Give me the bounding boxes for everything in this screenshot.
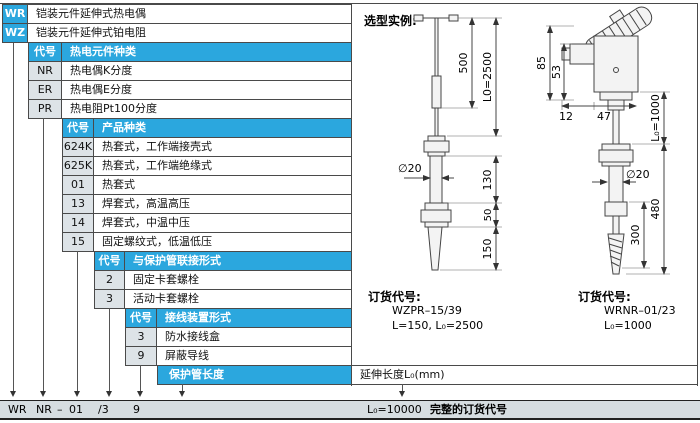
table-row: 3 活动卡套螺栓 bbox=[94, 289, 352, 309]
table-row: WZ 铠装元件延伸式铂电阻 bbox=[2, 23, 352, 43]
dim-label-50: 50 bbox=[483, 209, 494, 222]
arrow-down-icon bbox=[399, 391, 405, 397]
code-header-cell: 代号 bbox=[62, 118, 94, 138]
desc-cell: 热电偶E分度 bbox=[61, 80, 352, 100]
desc-cell: 铠装元件延伸式热电偶 bbox=[27, 4, 352, 24]
dim-label-500: 500 bbox=[457, 53, 470, 74]
table-row: 3 防水接线盒 bbox=[125, 327, 352, 347]
desc-cell: 活动卡套螺栓 bbox=[124, 289, 352, 309]
desc-cell: 固定螺纹式，低温低压 bbox=[93, 232, 352, 252]
arrow-down-icon bbox=[74, 391, 80, 397]
code-header-cell: 代号 bbox=[28, 42, 62, 62]
table-row: ER 热电偶E分度 bbox=[28, 80, 352, 100]
desc-cell: 热电阻Pt100分度 bbox=[61, 99, 352, 119]
arrow-down-icon bbox=[179, 391, 185, 397]
bar-code: NR bbox=[36, 402, 52, 417]
desc-cell: 热电偶K分度 bbox=[61, 61, 352, 81]
table-row: 13 焊套式，高温高压 bbox=[62, 194, 352, 214]
order-params-right: L₀=1000 bbox=[604, 319, 652, 332]
code-cell: 13 bbox=[62, 194, 94, 214]
order-code-left: WZPR–15/39 bbox=[392, 304, 462, 317]
table-header-row: 代号 产品种类 bbox=[62, 118, 352, 138]
code-cell: 01 bbox=[62, 175, 94, 195]
code-cell: PR bbox=[28, 99, 62, 119]
catalog-page: WR 铠装元件延伸式热电偶 WZ 铠装元件延伸式铂电阻 代号 热电元件种类 NR… bbox=[0, 0, 700, 423]
probe-body bbox=[599, 110, 633, 274]
table-row: 2 固定卡套螺栓 bbox=[94, 270, 352, 290]
length-value-cell: 延伸长度L₀(mm) bbox=[351, 365, 698, 385]
table-connection-type: 代号 与保护管联接形式 2 固定卡套螺栓 3 活动卡套螺栓 bbox=[94, 251, 352, 309]
bar-code: /3 bbox=[98, 402, 109, 417]
code-cell: 625K bbox=[62, 156, 94, 176]
order-label-right: 订货代号: bbox=[578, 288, 631, 305]
thermocouple-drawing-left: 500 L0=2500 ∅20 130 50 150 bbox=[392, 6, 522, 288]
table-row: 01 热套式 bbox=[62, 175, 352, 195]
dim-label-l0-1000: L₀=1000 bbox=[649, 94, 662, 142]
table-tube-length: 保护管长度 延伸长度L₀(mm) bbox=[157, 365, 698, 385]
thermocouple-drawing-right: 85 53 12 47 L₀=1000 ∅20 480 300 bbox=[534, 6, 698, 288]
connector-line bbox=[140, 365, 141, 392]
desc-cell: 热套式 bbox=[93, 175, 352, 195]
table-header-row: 代号 接线装置形式 bbox=[125, 308, 352, 328]
table-product-family: WR 铠装元件延伸式热电偶 WZ 铠装元件延伸式铂电阻 bbox=[2, 4, 352, 43]
code-cell: 14 bbox=[62, 213, 94, 233]
arrow-down-icon bbox=[10, 391, 16, 397]
bar-code: WR bbox=[8, 402, 27, 417]
desc-cell: 热套式，工作端接壳式 bbox=[93, 137, 352, 157]
desc-cell: 焊套式，中温中压 bbox=[93, 213, 352, 233]
table-row: 14 焊套式，中温中压 bbox=[62, 213, 352, 233]
table-terminal-type: 代号 接线装置形式 3 防水接线盒 9 屏蔽导线 bbox=[125, 308, 352, 366]
dim-label-total-length: L0=2500 bbox=[481, 52, 494, 102]
junction-head bbox=[562, 0, 655, 110]
bar-code: 9 bbox=[133, 402, 140, 417]
table-header-row: 代号 与保护管联接形式 bbox=[94, 251, 352, 271]
desc-cell: 屏蔽导线 bbox=[156, 346, 352, 366]
table-element-type: 代号 热电元件种类 NR 热电偶K分度 ER 热电偶E分度 PR 热电阻Pt10… bbox=[28, 42, 352, 119]
dim-label-12: 12 bbox=[559, 110, 573, 123]
connector-line bbox=[43, 118, 44, 392]
bar-code: 01 bbox=[69, 402, 83, 417]
desc-cell: 铠装元件延伸式铂电阻 bbox=[27, 23, 352, 43]
table-row: NR 热电偶K分度 bbox=[28, 61, 352, 81]
table-header-row: 代号 热电元件种类 bbox=[28, 42, 352, 62]
code-header-cell: 代号 bbox=[94, 251, 125, 271]
code-cell: 15 bbox=[62, 232, 94, 252]
order-code-bar: WR NR – 01 /3 9 L₀=10000 完整的订货代号 bbox=[0, 400, 700, 420]
code-cell: 9 bbox=[125, 346, 157, 366]
code-cell: 3 bbox=[125, 327, 157, 347]
bar-length-code: L₀=10000 bbox=[367, 402, 422, 417]
table-header-row: 保护管长度 延伸长度L₀(mm) bbox=[157, 365, 698, 385]
order-label-left: 订货代号: bbox=[368, 288, 421, 305]
desc-cell: 焊套式，高温高压 bbox=[93, 194, 352, 214]
code-cell: WZ bbox=[2, 23, 28, 43]
dim-label-diameter: ∅20 bbox=[398, 162, 422, 175]
connector-line bbox=[77, 251, 78, 392]
table-row: 625K 热套式，工作端绝缘式 bbox=[62, 156, 352, 176]
title-header-cell: 与保护管联接形式 bbox=[124, 251, 352, 271]
dim-label-47: 47 bbox=[597, 110, 611, 123]
arrow-down-icon bbox=[106, 391, 112, 397]
dim-label-130: 130 bbox=[481, 170, 494, 191]
dim-label-300: 300 bbox=[629, 225, 642, 246]
table-row: PR 热电阻Pt100分度 bbox=[28, 99, 352, 119]
title-header-cell: 产品种类 bbox=[93, 118, 352, 138]
table-row: 9 屏蔽导线 bbox=[125, 346, 352, 366]
title-header-cell: 接线装置形式 bbox=[156, 308, 352, 328]
desc-cell: 固定卡套螺栓 bbox=[124, 270, 352, 290]
dim-label-150: 150 bbox=[481, 239, 494, 260]
desc-cell: 防水接线盒 bbox=[156, 327, 352, 347]
bar-code: – bbox=[57, 402, 63, 417]
table-product-kind: 代号 产品种类 624K 热套式，工作端接壳式 625K 热套式，工作端绝缘式 … bbox=[62, 118, 352, 252]
order-code-right: WRNR–01/23 bbox=[604, 304, 676, 317]
bar-label: 完整的订货代号 bbox=[430, 402, 507, 417]
code-header-cell: 代号 bbox=[125, 308, 157, 328]
length-header-cell: 保护管长度 bbox=[157, 365, 352, 385]
desc-cell: 热套式，工作端绝缘式 bbox=[93, 156, 352, 176]
title-header-cell: 热电元件种类 bbox=[61, 42, 352, 62]
table-row: WR 铠装元件延伸式热电偶 bbox=[2, 4, 352, 24]
arrow-down-icon bbox=[137, 391, 143, 397]
code-cell: WR bbox=[2, 4, 28, 24]
probe-body bbox=[414, 15, 458, 270]
connector-line bbox=[13, 43, 14, 392]
code-cell: ER bbox=[28, 80, 62, 100]
dim-label-diameter: ∅20 bbox=[626, 168, 650, 181]
code-cell: 2 bbox=[94, 270, 125, 290]
table-row: 624K 热套式，工作端接壳式 bbox=[62, 137, 352, 157]
connector-line bbox=[109, 308, 110, 392]
code-cell: 3 bbox=[94, 289, 125, 309]
code-cell: NR bbox=[28, 61, 62, 81]
table-row: 15 固定螺纹式，低温低压 bbox=[62, 232, 352, 252]
dim-label-480: 480 bbox=[649, 199, 662, 220]
dim-label-85: 85 bbox=[535, 56, 548, 70]
order-params-left: L=150, L₀=2500 bbox=[392, 319, 483, 332]
dim-label-53: 53 bbox=[550, 65, 563, 79]
code-cell: 624K bbox=[62, 137, 94, 157]
arrow-down-icon bbox=[40, 391, 46, 397]
